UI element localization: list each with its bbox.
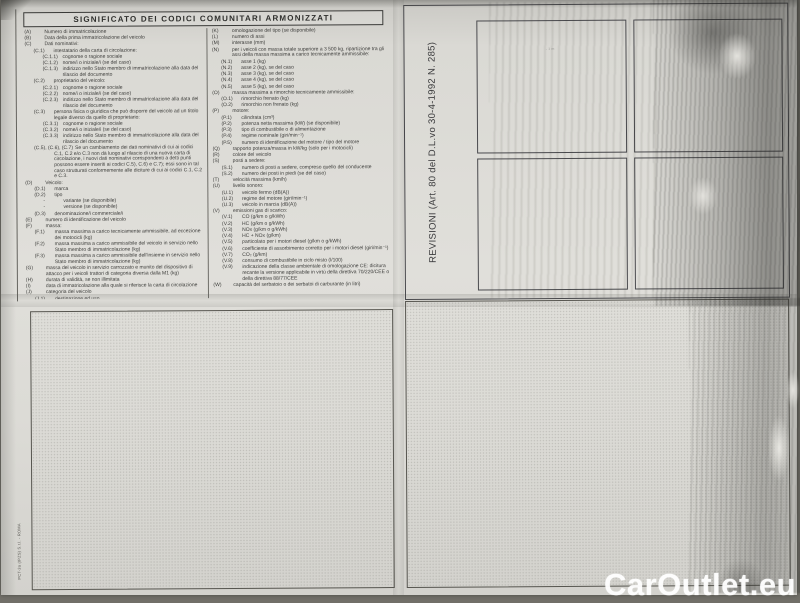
legend-row: (C.1.3)indirizzo nello Stato membro di i…: [25, 67, 204, 79]
legend-column-left: (A)Numero di immatricolazione(B)Data del…: [19, 28, 207, 299]
code-description: indirizzo nello Stato membro di immatric…: [63, 132, 199, 144]
legend-row: (J.1)destinazione ed uso: [26, 296, 205, 300]
legend-row: (N)per i veicoli con massa totale superi…: [212, 47, 391, 59]
legend-row: (W)capacità del serbatoio o dei serbatoi…: [213, 282, 392, 289]
revision-stamp-grid: · ¹ ᵐ: [476, 19, 784, 291]
printer-credit-strip: PCT-3a (IPZS) S.r.l. - ROMA: [13, 518, 23, 584]
blank-box-bottom-left: [30, 309, 395, 590]
code-description: destinazione ed uso: [55, 295, 100, 299]
code-description: cilindrata (cm³): [241, 114, 274, 120]
legend-columns: (A)Numero di immatricolazione(B)Data del…: [19, 27, 395, 299]
code-description: rimorchio non frenato (kg): [241, 102, 298, 108]
code-description: Data della prima immatricolazione del ve…: [44, 35, 144, 42]
code-description: motore:: [232, 108, 249, 114]
code-description: CO₂ (g/km): [242, 252, 267, 258]
revision-cell-2: [633, 19, 783, 152]
document-content: SIGNIFICATO DEI CODICI COMUNITARI ARMONI…: [0, 0, 799, 597]
legend-panel: SIGNIFICATO DEI CODICI COMUNITARI ARMONI…: [15, 7, 395, 301]
code-label: (C.1.3): [43, 67, 63, 73]
code-description: coefficiente di assorbimento corretto pe…: [242, 245, 388, 252]
legend-title: SIGNIFICATO DEI CODICI COMUNITARI ARMONI…: [23, 10, 383, 27]
printer-credit: PCT-3a (IPZS) S.r.l. - ROMA: [16, 523, 21, 579]
code-description: per i veicoli con massa totale superiore…: [232, 46, 384, 59]
code-description: livello sonoro:: [233, 183, 264, 189]
code-label: (C.3.3): [43, 134, 63, 140]
code-label: (V.9): [222, 265, 242, 271]
code-description: marca: [54, 186, 68, 192]
faint-stamp-mark: · ¹ ᵐ: [545, 47, 554, 53]
code-description: veicolo in marcia (dB(A)): [242, 202, 297, 208]
code-description: indicazione della classe ambientale di o…: [242, 263, 389, 281]
code-description: indirizzo nello Stato membro di immatric…: [63, 66, 199, 78]
blank-box-bottom-right: [405, 299, 791, 588]
code-description: Se un cambiamento dei dati nominativi di…: [54, 144, 202, 179]
legend-row: (V.9)indicazione della classe ambientale…: [213, 264, 392, 282]
code-label: (N): [212, 48, 232, 54]
revisioni-label-strip: REVISIONI (Art. 80 del D.L.vo 30-4-1992 …: [422, 6, 442, 299]
photo-background: SIGNIFICATO DEI CODICI COMUNITARI ARMONI…: [0, 0, 800, 600]
code-description: Veicolo:: [45, 180, 63, 186]
code-description: asse 1 (kg): [241, 58, 266, 64]
code-label: -: [43, 199, 63, 205]
code-description: rapporto potenza/massa in kW/kg (solo pe…: [233, 145, 353, 152]
code-description: massa massima a carico tecnicamente ammi…: [55, 229, 201, 242]
legend-column-right: (K)omologazione del tipo (se disponibile…: [206, 27, 395, 298]
document-paper: SIGNIFICATO DEI CODICI COMUNITARI ARMONI…: [1, 0, 797, 595]
watermark: CarOutlet.eu: [604, 567, 796, 603]
code-description: capacità del serbatoio o dei serbatoi di…: [233, 281, 360, 288]
code-description: omologazione del tipo (se disponibile): [232, 28, 316, 35]
revision-cell-4: [634, 156, 784, 289]
code-description: massa massima a rimorchio tecnicamente a…: [232, 89, 354, 96]
code-description: massa del veicolo in servizio carrozzato…: [46, 264, 193, 277]
revisioni-label: REVISIONI (Art. 80 del D.L.vo 30-4-1992 …: [426, 42, 438, 263]
code-label: (G): [26, 266, 46, 272]
code-description: massa massima a carico ammissibile del v…: [55, 240, 198, 253]
code-description: numero di identificazione del veicolo: [46, 217, 126, 223]
code-label: (J.1): [35, 297, 55, 300]
code-label: (F.3): [35, 254, 55, 260]
code-description: colore del veicolo: [233, 152, 272, 158]
revisioni-panel: REVISIONI (Art. 80 del D.L.vo 30-4-1992 …: [403, 3, 790, 300]
code-description: tipo: [54, 192, 62, 198]
code-label: (F.1): [35, 230, 55, 236]
code-label: (F.2): [35, 242, 55, 248]
code-description: velocità massima (km/h): [233, 177, 287, 183]
code-label: (C.3): [34, 110, 54, 116]
code-label: (W): [213, 283, 233, 289]
code-description: massa:: [46, 223, 62, 229]
revision-cell-1: · ¹ ᵐ: [476, 20, 626, 153]
legend-row: (C.5), (C.6), (C.7)Se un cambiamento dei…: [25, 145, 204, 180]
code-label: (C.2.3): [43, 98, 63, 104]
code-description: persona fisica o giuridica che può dispo…: [54, 108, 199, 121]
code-description: regime del motore (giri/min⁻¹): [242, 195, 307, 201]
code-description: indirizzo nello Stato membro di immatric…: [63, 96, 199, 108]
code-description: massa massima a carico ammissibile dell'…: [55, 252, 200, 265]
code-description: data di immatricolazione alla quale si r…: [46, 282, 198, 289]
revision-cell-3: [477, 157, 627, 290]
